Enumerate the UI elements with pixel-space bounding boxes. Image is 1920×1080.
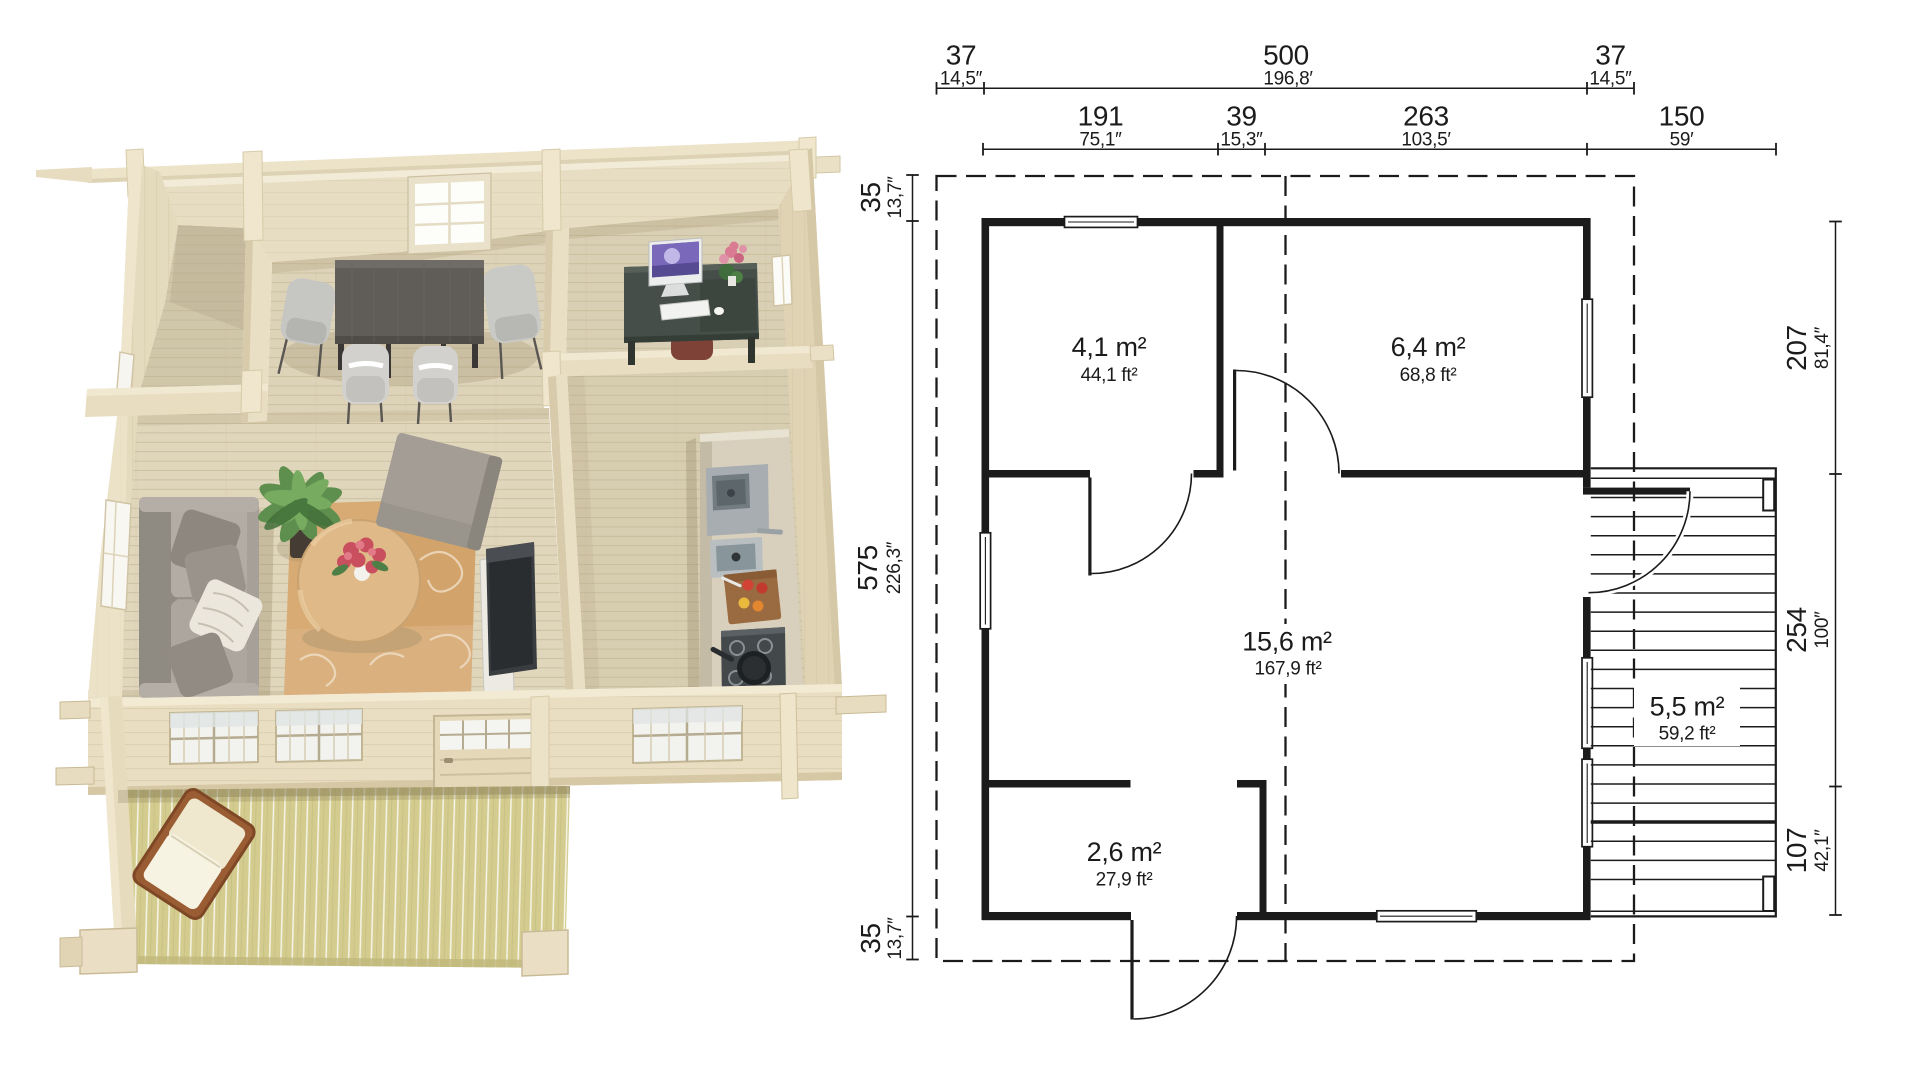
svg-text:42,1″: 42,1″ bbox=[1812, 829, 1833, 872]
svg-text:13,7″: 13,7″ bbox=[885, 176, 906, 219]
svg-text:35: 35 bbox=[855, 923, 886, 954]
svg-text:500: 500 bbox=[1263, 40, 1309, 71]
svg-text:207: 207 bbox=[1781, 325, 1812, 371]
svg-text:37: 37 bbox=[946, 40, 977, 71]
svg-text:150: 150 bbox=[1659, 101, 1705, 132]
svg-text:6,4 m²: 6,4 m² bbox=[1391, 332, 1466, 362]
svg-text:254: 254 bbox=[1781, 607, 1812, 653]
svg-text:100″: 100″ bbox=[1812, 611, 1833, 649]
svg-text:103,5′: 103,5′ bbox=[1401, 129, 1451, 150]
svg-text:81,4″: 81,4″ bbox=[1812, 326, 1833, 369]
svg-text:37: 37 bbox=[1595, 40, 1626, 71]
svg-text:39: 39 bbox=[1226, 101, 1257, 132]
svg-text:167,9 ft²: 167,9 ft² bbox=[1254, 659, 1321, 680]
svg-text:35: 35 bbox=[855, 182, 886, 213]
svg-text:196,8′: 196,8′ bbox=[1263, 68, 1313, 89]
svg-text:27,9 ft²: 27,9 ft² bbox=[1096, 870, 1153, 891]
svg-text:14,5″: 14,5″ bbox=[1589, 68, 1632, 89]
svg-text:68,8 ft²: 68,8 ft² bbox=[1400, 365, 1457, 386]
svg-text:226,3″: 226,3″ bbox=[884, 541, 905, 594]
svg-text:59,2 ft²: 59,2 ft² bbox=[1659, 724, 1716, 745]
svg-text:59′: 59′ bbox=[1670, 129, 1695, 150]
svg-text:15,3″: 15,3″ bbox=[1220, 129, 1263, 150]
svg-text:107: 107 bbox=[1781, 828, 1812, 874]
svg-text:75,1″: 75,1″ bbox=[1079, 129, 1122, 150]
svg-text:2,6 m²: 2,6 m² bbox=[1087, 837, 1162, 867]
svg-text:14,5″: 14,5″ bbox=[940, 68, 983, 89]
svg-text:15,6 m²: 15,6 m² bbox=[1242, 627, 1332, 657]
svg-text:575: 575 bbox=[852, 545, 883, 591]
svg-text:4,1 m²: 4,1 m² bbox=[1072, 332, 1147, 362]
svg-text:263: 263 bbox=[1403, 101, 1449, 132]
svg-text:13,7″: 13,7″ bbox=[885, 917, 906, 960]
svg-text:191: 191 bbox=[1078, 101, 1124, 132]
svg-text:44,1 ft²: 44,1 ft² bbox=[1081, 365, 1138, 386]
svg-text:5,5 m²: 5,5 m² bbox=[1650, 692, 1725, 722]
